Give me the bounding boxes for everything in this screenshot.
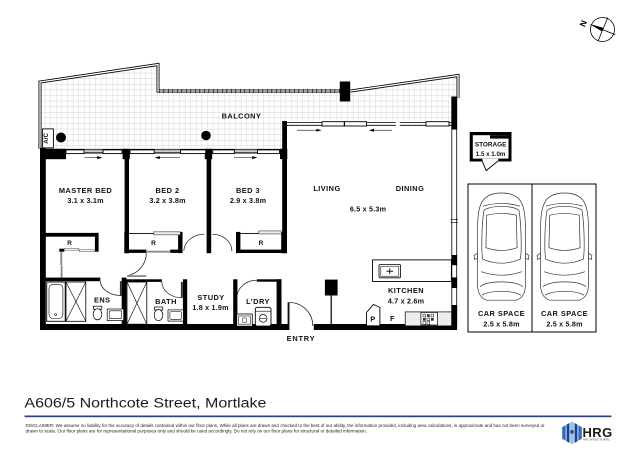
svg-text:MASTER BED: MASTER BED [59, 186, 113, 195]
svg-text:BALCONY: BALCONY [222, 112, 262, 121]
svg-text:BED 3: BED 3 [236, 186, 260, 195]
svg-text:drawn to scale. Our floor plan: drawn to scale. Our floor plans are for … [26, 429, 368, 434]
svg-text:STUDY: STUDY [197, 293, 224, 302]
svg-text:3.2 x 3.8m: 3.2 x 3.8m [149, 196, 185, 205]
svg-text:DINING: DINING [396, 184, 425, 193]
svg-text:R: R [151, 240, 156, 247]
svg-text:2.5 x 5.8m: 2.5 x 5.8m [483, 320, 519, 329]
svg-text:3.1 x 3.1m: 3.1 x 3.1m [67, 196, 103, 205]
svg-text:DISCLAIMER: We assume no liabi: DISCLAIMER: We assume no liability for t… [26, 423, 546, 428]
svg-text:BATH: BATH [155, 297, 177, 306]
svg-text:A606/5 Northcote Street, Mortl: A606/5 Northcote Street, Mortlake [24, 396, 266, 411]
svg-text:KITCHEN: KITCHEN [388, 286, 424, 295]
svg-text:L’DRY: L’DRY [246, 297, 270, 306]
svg-text:CAR SPACE: CAR SPACE [541, 309, 588, 318]
svg-text:6.5 x 5.3m: 6.5 x 5.3m [350, 204, 386, 213]
svg-text:2.9 x 3.8m: 2.9 x 3.8m [230, 196, 266, 205]
svg-text:R: R [67, 240, 72, 247]
svg-text:2.5 x 5.8m: 2.5 x 5.8m [546, 320, 582, 329]
svg-text:R: R [259, 240, 264, 247]
svg-text:ARCHITECTURAL: ARCHITECTURAL [583, 438, 610, 442]
svg-text:STORAGE: STORAGE [475, 142, 507, 149]
svg-text:1.5 x 1.0m: 1.5 x 1.0m [476, 151, 506, 158]
svg-text:ENS: ENS [94, 296, 111, 305]
svg-text:LIVING: LIVING [313, 184, 340, 193]
svg-text:P: P [370, 315, 375, 324]
svg-text:CAR SPACE: CAR SPACE [478, 309, 525, 318]
svg-text:F: F [390, 314, 395, 323]
svg-text:1.8 x 1.9m: 1.8 x 1.9m [192, 303, 228, 312]
svg-text:BED 2: BED 2 [155, 186, 179, 195]
svg-text:4.7 x 2.6m: 4.7 x 2.6m [388, 296, 424, 305]
svg-text:A/C: A/C [43, 133, 50, 144]
svg-text:ENTRY: ENTRY [287, 334, 316, 343]
